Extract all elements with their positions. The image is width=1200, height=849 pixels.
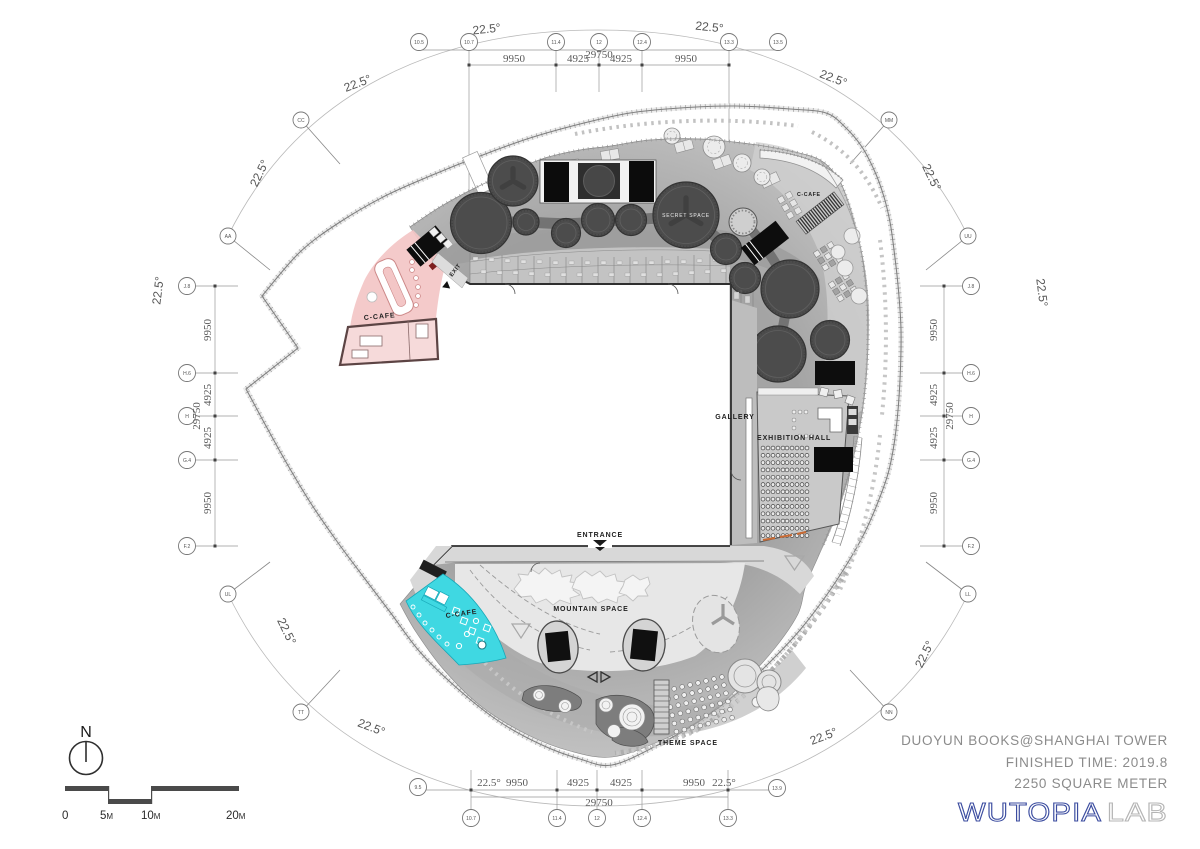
- svg-text:22.5°: 22.5°: [477, 777, 501, 789]
- svg-text:DUOYUN BOOKS@SHANGHAI TOWER: DUOYUN BOOKS@SHANGHAI TOWER: [901, 733, 1168, 748]
- svg-text:GALLERY: GALLERY: [715, 414, 755, 421]
- svg-text:CC: CC: [297, 118, 305, 124]
- svg-text:4925: 4925: [928, 427, 940, 450]
- svg-text:F.2: F.2: [184, 544, 191, 550]
- svg-text:FINISHED TIME: 2019.8: FINISHED TIME: 2019.8: [1006, 755, 1168, 770]
- svg-text:12.4: 12.4: [637, 40, 647, 46]
- svg-text:9950: 9950: [675, 53, 698, 65]
- svg-text:SECRET SPACE: SECRET SPACE: [662, 213, 710, 219]
- svg-text:10.5: 10.5: [414, 40, 424, 46]
- svg-text:G.4: G.4: [183, 458, 191, 464]
- svg-text:9950: 9950: [202, 319, 214, 342]
- svg-text:2250 SQUARE METER: 2250 SQUARE METER: [1014, 776, 1168, 791]
- svg-text:11.4: 11.4: [551, 40, 561, 46]
- svg-text:NN: NN: [885, 710, 893, 716]
- svg-text:F.2: F.2: [968, 544, 975, 550]
- svg-text:9950: 9950: [928, 319, 940, 342]
- svg-text:LL: LL: [965, 592, 971, 598]
- svg-text:4925: 4925: [928, 384, 940, 407]
- svg-text:UU: UU: [964, 234, 972, 240]
- svg-text:TT: TT: [298, 710, 304, 716]
- svg-text:J.8: J.8: [968, 284, 975, 290]
- svg-text:10.7: 10.7: [466, 816, 476, 822]
- svg-text:10M: 10M: [141, 810, 161, 822]
- svg-text:9950: 9950: [506, 777, 529, 789]
- svg-text:20M: 20M: [226, 810, 246, 822]
- svg-text:H: H: [969, 414, 973, 420]
- svg-text:9950: 9950: [683, 777, 706, 789]
- svg-text:J.8: J.8: [184, 284, 191, 290]
- svg-text:N: N: [80, 724, 92, 741]
- svg-text:C-CAFE: C-CAFE: [797, 192, 821, 198]
- svg-text:MOUNTAIN SPACE: MOUNTAIN SPACE: [553, 606, 628, 613]
- svg-text:29750: 29750: [585, 797, 613, 809]
- svg-text:22.5°: 22.5°: [695, 19, 725, 36]
- svg-text:22.5°: 22.5°: [712, 777, 736, 789]
- svg-text:4925: 4925: [610, 53, 633, 65]
- svg-text:5M: 5M: [100, 810, 113, 822]
- svg-text:9950: 9950: [928, 492, 940, 515]
- svg-text:H.6: H.6: [967, 371, 975, 377]
- svg-text:UL: UL: [225, 592, 232, 598]
- svg-text:THEME SPACE: THEME SPACE: [658, 740, 718, 747]
- svg-text:EXHIBITION HALL: EXHIBITION HALL: [757, 435, 831, 442]
- svg-text:13.9: 13.9: [772, 786, 782, 792]
- svg-text:0: 0: [62, 810, 68, 822]
- svg-text:MM: MM: [885, 118, 893, 124]
- svg-text:22.5°: 22.5°: [472, 21, 502, 38]
- svg-text:G.4: G.4: [967, 458, 975, 464]
- svg-text:4925: 4925: [610, 777, 633, 789]
- svg-text:10.7: 10.7: [464, 40, 474, 46]
- svg-text:13.5: 13.5: [773, 40, 783, 46]
- svg-text:AA: AA: [225, 234, 232, 240]
- svg-text:12: 12: [596, 40, 602, 46]
- svg-text:11.4: 11.4: [552, 816, 562, 822]
- svg-text:9950: 9950: [202, 492, 214, 515]
- svg-text:4925: 4925: [567, 777, 590, 789]
- svg-text:29750: 29750: [191, 402, 203, 430]
- svg-text:13.3: 13.3: [724, 40, 734, 46]
- svg-text:4925: 4925: [202, 427, 214, 450]
- svg-text:H: H: [185, 414, 189, 420]
- svg-text:WUTOPIA: WUTOPIA: [958, 797, 1102, 827]
- svg-text:LAB: LAB: [1107, 797, 1168, 827]
- svg-text:12.4: 12.4: [637, 816, 647, 822]
- svg-text:9.5: 9.5: [415, 785, 422, 791]
- svg-text:13.3: 13.3: [723, 816, 733, 822]
- svg-text:4925: 4925: [567, 53, 590, 65]
- svg-text:ENTRANCE: ENTRANCE: [577, 532, 623, 539]
- svg-text:29750: 29750: [944, 402, 956, 430]
- svg-text:H.6: H.6: [183, 371, 191, 377]
- svg-text:4925: 4925: [202, 384, 214, 407]
- svg-text:9950: 9950: [503, 53, 526, 65]
- svg-text:12: 12: [594, 816, 600, 822]
